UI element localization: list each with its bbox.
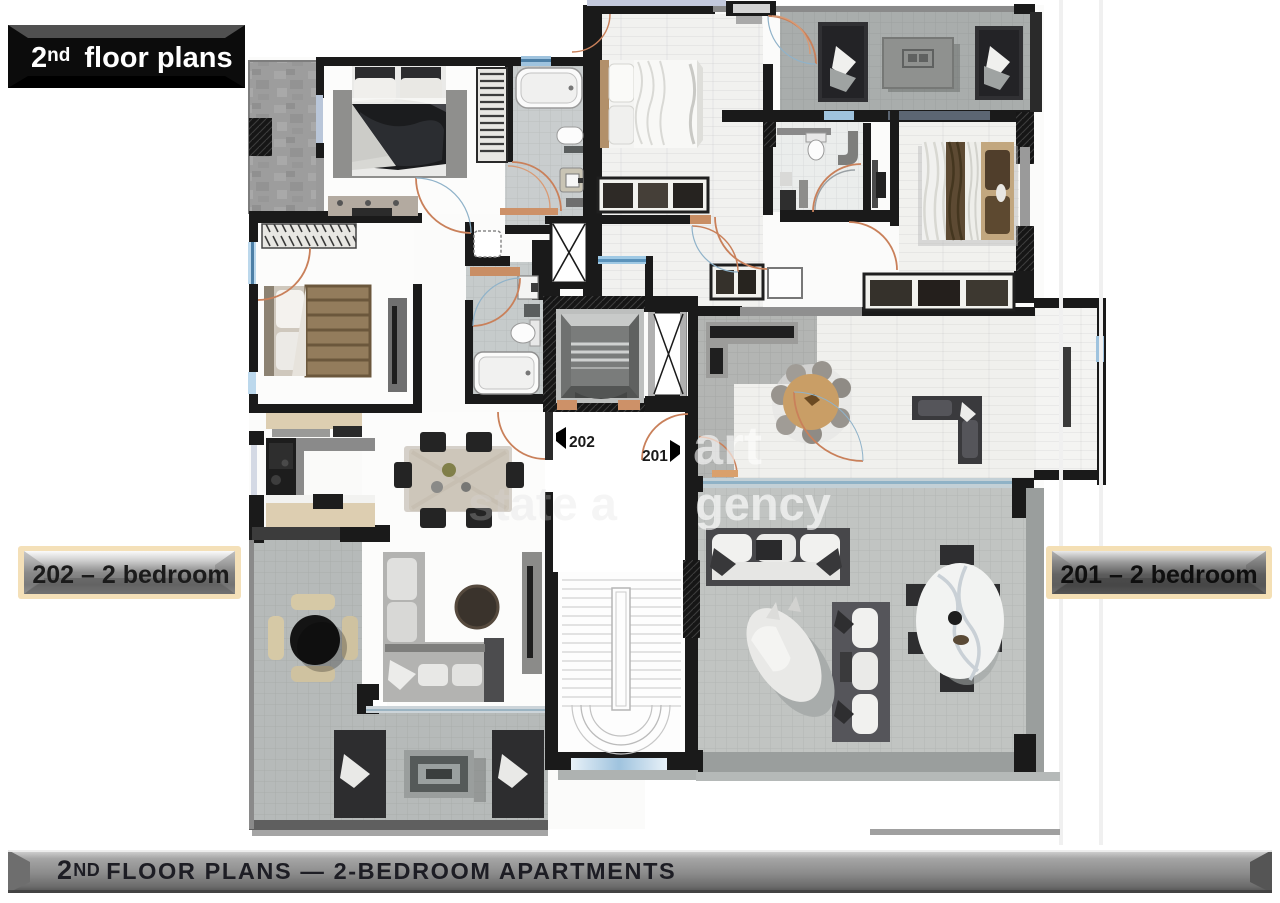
svg-text:art: art [693,416,762,476]
svg-text:gency: gency [695,477,831,530]
svg-text:state a: state a [468,477,618,530]
svg-text:201 – 2 bedroom: 201 – 2 bedroom [1060,561,1257,589]
svg-text:201: 201 [642,448,668,465]
svg-text:202: 202 [569,434,595,451]
svg-text:2NDFLOOR PLANS — 2-BEDROOM APA: 2NDFLOOR PLANS — 2-BEDROOM APARTMENTS [57,855,676,885]
svg-text:202 – 2 bedroom: 202 – 2 bedroom [32,561,229,589]
